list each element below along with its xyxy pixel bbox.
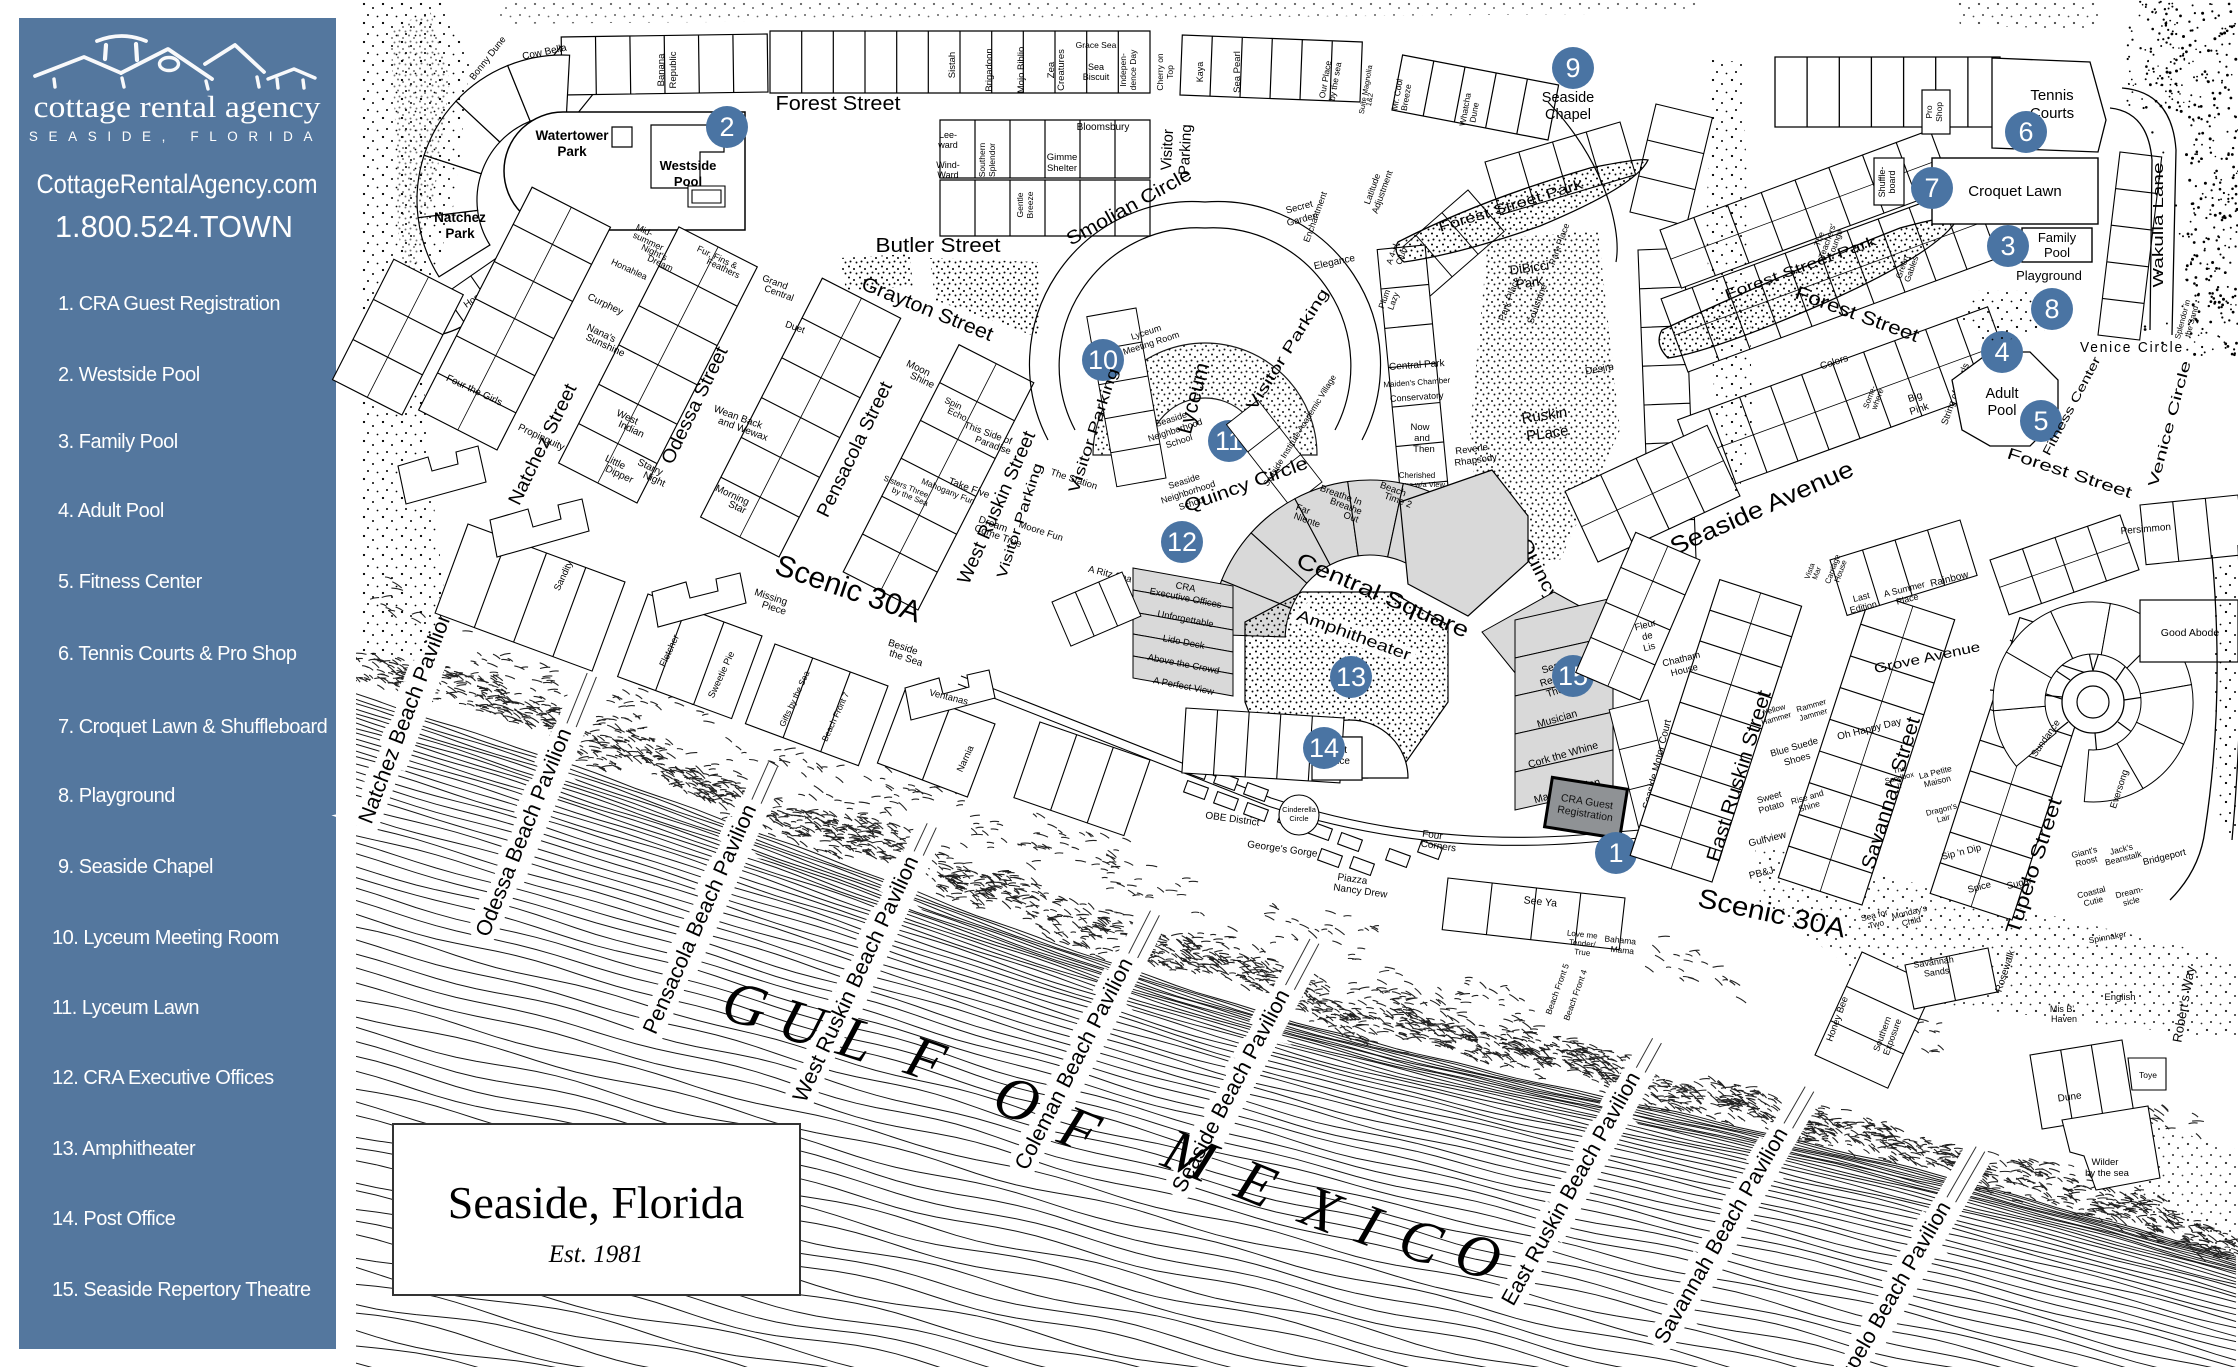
svg-text:2. Westside Pool: 2. Westside Pool [58, 364, 200, 386]
svg-text:3: 3 [2000, 231, 2015, 261]
svg-text:CottageRentalAgency.com: CottageRentalAgency.com [37, 169, 318, 199]
svg-text:SEASIDE, FLORIDA: SEASIDE, FLORIDA [29, 129, 323, 144]
svg-text:Splendor: Splendor [987, 143, 997, 177]
svg-text:Indepen-: Indepen- [1118, 53, 1128, 87]
svg-text:Lee-: Lee- [939, 130, 957, 140]
svg-text:Then: Then [1413, 444, 1435, 455]
svg-text:12: 12 [1167, 527, 1197, 557]
svg-text:Tennis: Tennis [2030, 87, 2073, 104]
svg-text:11. Lyceum Lawn: 11. Lyceum Lawn [52, 997, 199, 1019]
svg-text:Mojo Biblio: Mojo Biblio [1016, 47, 1027, 93]
svg-text:5: 5 [2033, 406, 2048, 436]
svg-text:Banana: Banana [656, 53, 667, 86]
svg-text:Venice Circle: Venice Circle [2080, 339, 2184, 356]
svg-text:7: 7 [1924, 173, 1939, 203]
svg-text:8: 8 [2044, 294, 2059, 324]
svg-text:Adult: Adult [1985, 386, 2018, 402]
svg-text:Mis B': Mis B' [2050, 1004, 2075, 1014]
svg-text:Circle: Circle [1289, 814, 1308, 823]
svg-text:Seaside, Florida: Seaside, Florida [448, 1177, 744, 1228]
svg-text:Bloomsbury: Bloomsbury [1077, 122, 1130, 133]
svg-text:Park: Park [445, 226, 475, 241]
svg-text:Wind-: Wind- [936, 160, 960, 170]
svg-text:Sea Pearl: Sea Pearl [1232, 51, 1243, 93]
svg-text:Creatures: Creatures [1056, 49, 1067, 91]
svg-text:ward: ward [937, 140, 958, 150]
svg-text:Grace Sea: Grace Sea [1076, 40, 1117, 50]
svg-text:1: 1 [1608, 838, 1623, 868]
svg-text:Shop: Shop [1934, 102, 1944, 122]
svg-text:Brigadoon: Brigadoon [984, 48, 995, 91]
svg-text:Playground: Playground [2016, 268, 2082, 283]
svg-text:True: True [1574, 947, 1592, 958]
svg-text:12. CRA Executive Offices: 12. CRA Executive Offices [52, 1067, 274, 1089]
svg-text:4. Adult Pool: 4. Adult Pool [58, 500, 164, 522]
svg-text:1.800.524.TOWN: 1.800.524.TOWN [55, 209, 293, 244]
svg-text:Wakulla Lane: Wakulla Lane [2151, 163, 2167, 288]
svg-text:Pool: Pool [2044, 245, 2070, 260]
svg-text:Gentle: Gentle [1015, 192, 1025, 217]
svg-text:board: board [1887, 170, 1897, 193]
svg-text:13: 13 [1336, 662, 1366, 692]
svg-text:Butler Street: Butler Street [876, 235, 1001, 257]
svg-text:Southern: Southern [977, 142, 987, 177]
svg-text:Ward: Ward [937, 170, 958, 180]
svg-text:13. Amphitheater: 13. Amphitheater [52, 1138, 196, 1160]
svg-text:Croquet Lawn: Croquet Lawn [1968, 183, 2061, 200]
svg-text:10. Lyceum Meeting Room: 10. Lyceum Meeting Room [52, 927, 279, 949]
svg-text:2: 2 [719, 112, 734, 142]
svg-text:by the sea: by the sea [2085, 1168, 2130, 1179]
svg-text:Est. 1981: Est. 1981 [548, 1241, 643, 1268]
svg-text:Haven: Haven [2051, 1014, 2077, 1024]
svg-text:Cinderella: Cinderella [1282, 805, 1317, 814]
svg-text:Wilder: Wilder [2092, 1157, 2119, 1168]
svg-text:English: English [2104, 992, 2135, 1003]
svg-text:6: 6 [2018, 117, 2033, 147]
svg-text:9: 9 [1565, 53, 1580, 83]
svg-text:Pro: Pro [1924, 105, 1934, 119]
svg-text:Cherished: Cherished [1399, 471, 1435, 480]
svg-text:Toye: Toye [2139, 1070, 2157, 1080]
svg-text:dence Day: dence Day [1128, 49, 1138, 90]
svg-text:Pool: Pool [1987, 403, 2016, 419]
svg-text:Shelter: Shelter [1047, 163, 1077, 174]
svg-text:1. CRA Guest Registration: 1. CRA Guest Registration [58, 293, 280, 315]
svg-text:cottage rental agency: cottage rental agency [34, 89, 322, 124]
svg-text:Park: Park [557, 144, 587, 159]
svg-text:Sea: Sea [1088, 62, 1104, 72]
svg-text:Cherry on: Cherry on [1155, 53, 1165, 91]
svg-text:Good Abode: Good Abode [2161, 627, 2220, 639]
svg-text:Shuffle-: Shuffle- [1877, 167, 1887, 198]
svg-text:Top: Top [1165, 65, 1175, 79]
svg-text:9. Seaside Chapel: 9. Seaside Chapel [58, 856, 213, 878]
svg-text:Now: Now [1410, 422, 1429, 433]
svg-text:Visitor: Visitor [1158, 129, 1177, 171]
svg-text:15. Seaside Repertory Theatre: 15. Seaside Repertory Theatre [52, 1279, 311, 1301]
svg-text:Pool: Pool [674, 174, 702, 189]
svg-text:Biscuit: Biscuit [1083, 72, 1110, 82]
svg-text:7. Croquet Lawn & Shuffleboard: 7. Croquet Lawn & Shuffleboard [58, 716, 327, 738]
svg-text:Republic: Republic [668, 51, 679, 88]
svg-text:Kaya: Kaya [1195, 62, 1205, 83]
svg-text:5. Fitness Center: 5. Fitness Center [58, 571, 203, 593]
svg-text:14. Post Office: 14. Post Office [52, 1208, 176, 1230]
svg-text:Breeze: Breeze [1025, 191, 1035, 218]
svg-text:6. Tennis Courts & Pro Shop: 6. Tennis Courts & Pro Shop [58, 643, 297, 665]
svg-text:Family: Family [2038, 230, 2077, 245]
svg-text:Gimme: Gimme [1047, 152, 1078, 163]
svg-text:Sistah: Sistah [947, 52, 958, 78]
svg-text:Westside: Westside [660, 158, 717, 173]
svg-text:Chapel: Chapel [1545, 107, 1591, 123]
svg-text:3. Family Pool: 3. Family Pool [58, 431, 178, 453]
svg-text:8. Playground: 8. Playground [58, 785, 175, 807]
svg-text:14: 14 [1309, 733, 1339, 763]
svg-text:and: and [1414, 433, 1430, 444]
svg-text:Watertower: Watertower [535, 128, 609, 143]
svg-text:Forest Street: Forest Street [776, 93, 901, 115]
